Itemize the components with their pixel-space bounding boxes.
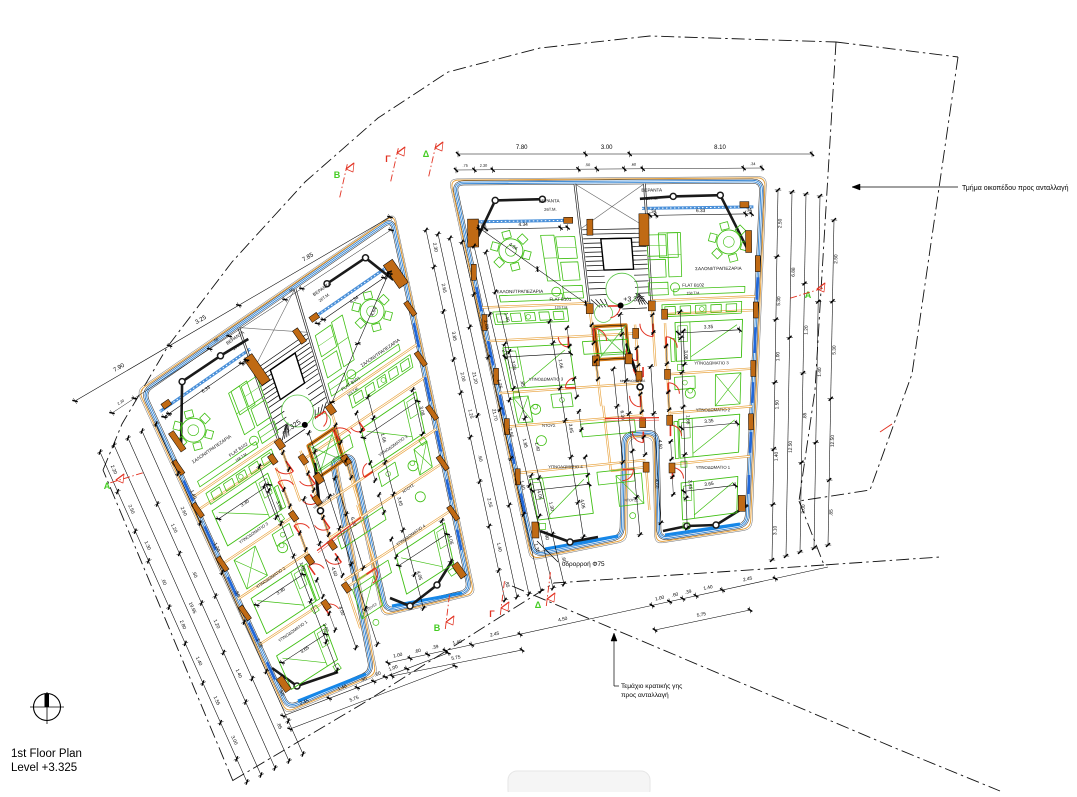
svg-text:Τμήμα οικοπέδου προς ανταλλαγή: Τμήμα οικοπέδου προς ανταλλαγή <box>962 184 1069 192</box>
svg-text:1st Floor Plan: 1st Floor Plan <box>11 748 82 760</box>
svg-text:12.50: 12.50 <box>830 435 836 447</box>
svg-text:.60: .60 <box>631 163 636 167</box>
svg-text:ΒΕΡΑΝΤΑ: ΒΕΡΑΝΤΑ <box>539 198 561 203</box>
svg-text:3.00: 3.00 <box>601 145 613 151</box>
svg-text:6.88: 6.88 <box>791 267 797 277</box>
svg-text:Β: Β <box>334 170 341 180</box>
svg-text:Β: Β <box>434 623 441 633</box>
svg-text:4.34: 4.34 <box>518 222 528 228</box>
svg-text:Τεμάχιο κρατικής γης: Τεμάχιο κρατικής γης <box>621 682 682 690</box>
svg-text:5.30: 5.30 <box>776 296 782 306</box>
svg-text:ΣΑΛΟΝΙ/ΤΡΑΠΕΖΑΡΙΑ: ΣΑΛΟΝΙ/ΤΡΑΠΕΖΑΡΙΑ <box>497 289 545 294</box>
svg-text:3.65: 3.65 <box>687 480 693 490</box>
svg-text:ΥΠΝΟΔΩΜΑΤΙΟ 3: ΥΠΝΟΔΩΜΑΤΙΟ 3 <box>694 360 729 365</box>
svg-text:.75: .75 <box>463 164 468 168</box>
svg-text:ΒΕΡΑΝΤΑ: ΒΕΡΑΝΤΑ <box>641 188 663 193</box>
svg-text:2.50: 2.50 <box>777 218 783 228</box>
svg-text:+3.325: +3.325 <box>623 296 645 303</box>
svg-text:3.10: 3.10 <box>772 525 778 535</box>
svg-text:1.00: 1.00 <box>775 352 781 362</box>
svg-text:158 Τ.Μ.: 158 Τ.Μ. <box>687 291 701 295</box>
svg-text:3.65: 3.65 <box>704 481 714 488</box>
svg-text:12.50: 12.50 <box>788 441 794 453</box>
svg-text:4.50: 4.50 <box>657 440 664 450</box>
svg-text:ΣΑΛΟΝΙ/ΤΡΑΠΕΖΑΡΙΑ: ΣΑΛΟΝΙ/ΤΡΑΠΕΖΑΡΙΑ <box>695 266 743 271</box>
svg-text:.50: .50 <box>585 163 590 167</box>
svg-text:6.33: 6.33 <box>696 208 706 214</box>
svg-text:3.00: 3.00 <box>801 504 807 514</box>
svg-text:5.30: 5.30 <box>832 345 838 355</box>
svg-text:123 Τ.Μ.: 123 Τ.Μ. <box>555 306 569 310</box>
svg-text:υδρορροή Φ75: υδρορροή Φ75 <box>562 561 605 568</box>
svg-text:2.50: 2.50 <box>833 254 839 264</box>
svg-text:ΥΠΝΟΔΩΜΑΤΙΟ 1: ΥΠΝΟΔΩΜΑΤΙΟ 1 <box>696 465 731 470</box>
svg-text:4.60: 4.60 <box>653 479 660 489</box>
svg-text:19Τ.Μ.: 19Τ.Μ. <box>646 196 659 201</box>
svg-text:FLAT Β102: FLAT Β102 <box>682 283 704 288</box>
svg-text:ΥΠΝΟΔΩΜΑΤΙΟ 2: ΥΠΝΟΔΩΜΑΤΙΟ 2 <box>696 407 731 412</box>
svg-text:Α: Α <box>104 481 111 491</box>
svg-text:3.08: 3.08 <box>682 350 688 360</box>
svg-text:7.80: 7.80 <box>516 145 528 151</box>
svg-text:Δ: Δ <box>423 149 430 159</box>
svg-text:6.30: 6.30 <box>619 410 626 420</box>
svg-text:FLAT Β101: FLAT Β101 <box>549 297 571 302</box>
svg-text:Γ: Γ <box>489 609 495 619</box>
svg-text:Level +3.325: Level +3.325 <box>11 762 77 774</box>
svg-text:Γ: Γ <box>385 154 391 164</box>
svg-text:ΝΤΟΥΣ: ΝΤΟΥΣ <box>542 423 556 428</box>
svg-text:ΝΤΟΥΣ2: ΝΤΟΥΣ2 <box>624 498 638 502</box>
svg-text:.34: .34 <box>750 162 755 166</box>
svg-text:Α: Α <box>805 290 812 300</box>
svg-text:1.40: 1.40 <box>774 451 780 461</box>
svg-text:ΥΠΝΟΔΩΜΑΤΙΟ 4: ΥΠΝΟΔΩΜΑΤΙΟ 4 <box>548 464 583 469</box>
svg-text:.34: .34 <box>745 207 752 213</box>
svg-text:.85: .85 <box>829 509 835 516</box>
svg-text:1.20: 1.20 <box>804 325 810 335</box>
svg-text:Δ: Δ <box>535 600 542 610</box>
svg-text:.70: .70 <box>479 223 486 229</box>
svg-text:1.66: 1.66 <box>684 415 690 425</box>
svg-text:ΥΠΝΟΔΩΜΑΤΙΟ 3: ΥΠΝΟΔΩΜΑΤΙΟ 3 <box>529 376 564 381</box>
svg-text:.34: .34 <box>650 209 657 215</box>
svg-text:3.35: 3.35 <box>704 418 714 425</box>
svg-text:1.40: 1.40 <box>817 367 823 377</box>
svg-text:1.50: 1.50 <box>774 400 780 410</box>
svg-text:26Τ.Μ.: 26Τ.Μ. <box>544 207 557 212</box>
svg-text:προς ανταλλαγή: προς ανταλλαγή <box>621 692 669 699</box>
svg-text:8.10: 8.10 <box>714 145 726 151</box>
svg-text:ΜΗΧΑΝΟΛΟΓΙΚΑ: ΜΗΧΑΝΟΛΟΓΙΚΑ <box>620 379 646 383</box>
svg-text:3.35: 3.35 <box>704 324 714 330</box>
svg-text:.85: .85 <box>802 412 808 419</box>
svg-text:2.30: 2.30 <box>480 164 487 168</box>
